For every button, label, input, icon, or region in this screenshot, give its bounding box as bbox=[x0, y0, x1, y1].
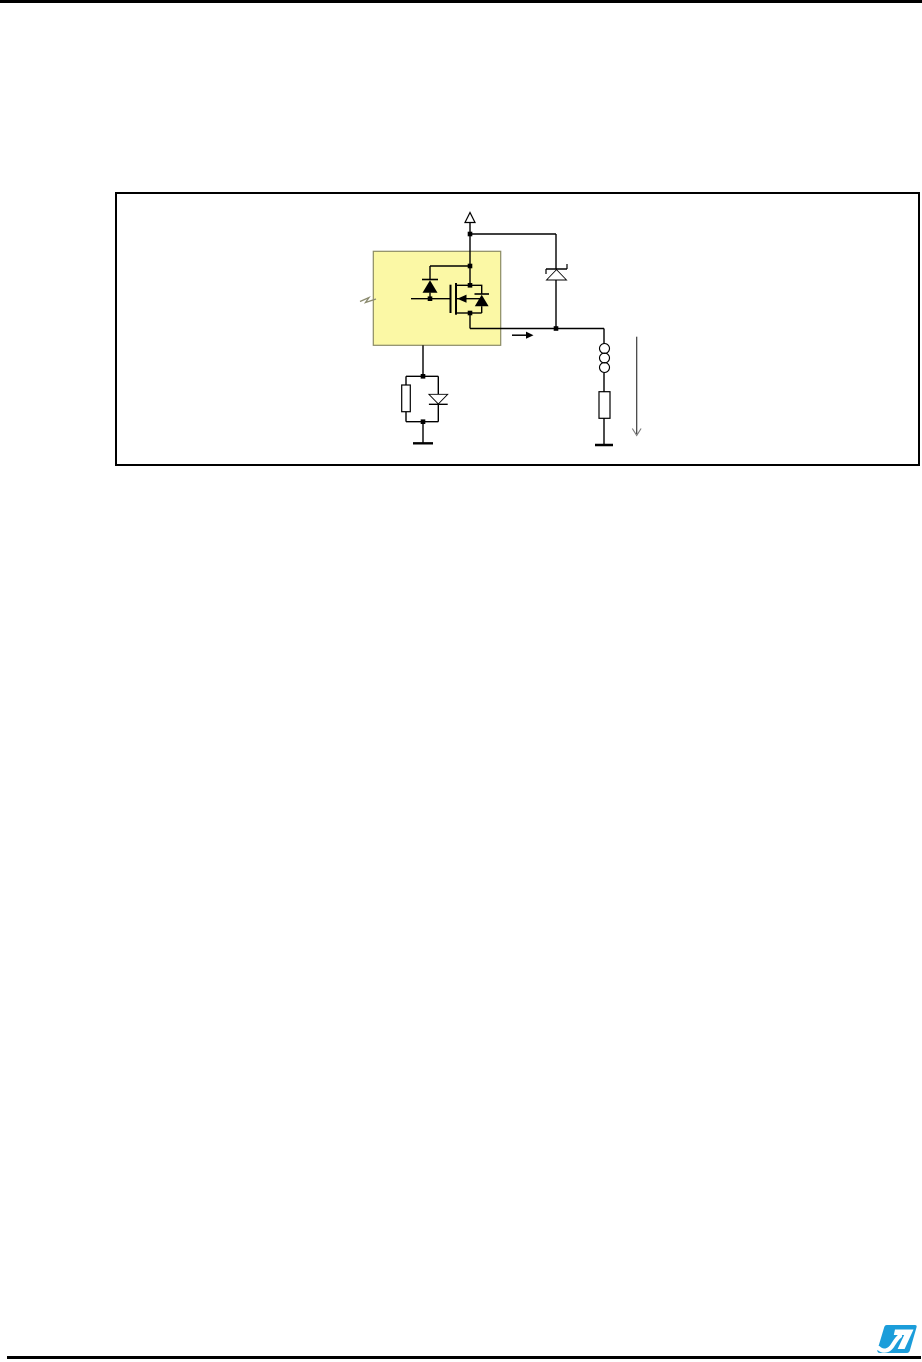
gate-source-resistor-icon bbox=[402, 385, 411, 412]
document-page bbox=[0, 0, 922, 1362]
st-logo bbox=[876, 1325, 917, 1353]
page-top-rule bbox=[0, 0, 922, 3]
page-bottom-rule bbox=[7, 1356, 921, 1359]
schematic-figure bbox=[115, 192, 920, 466]
load-resistor-icon bbox=[599, 392, 610, 419]
